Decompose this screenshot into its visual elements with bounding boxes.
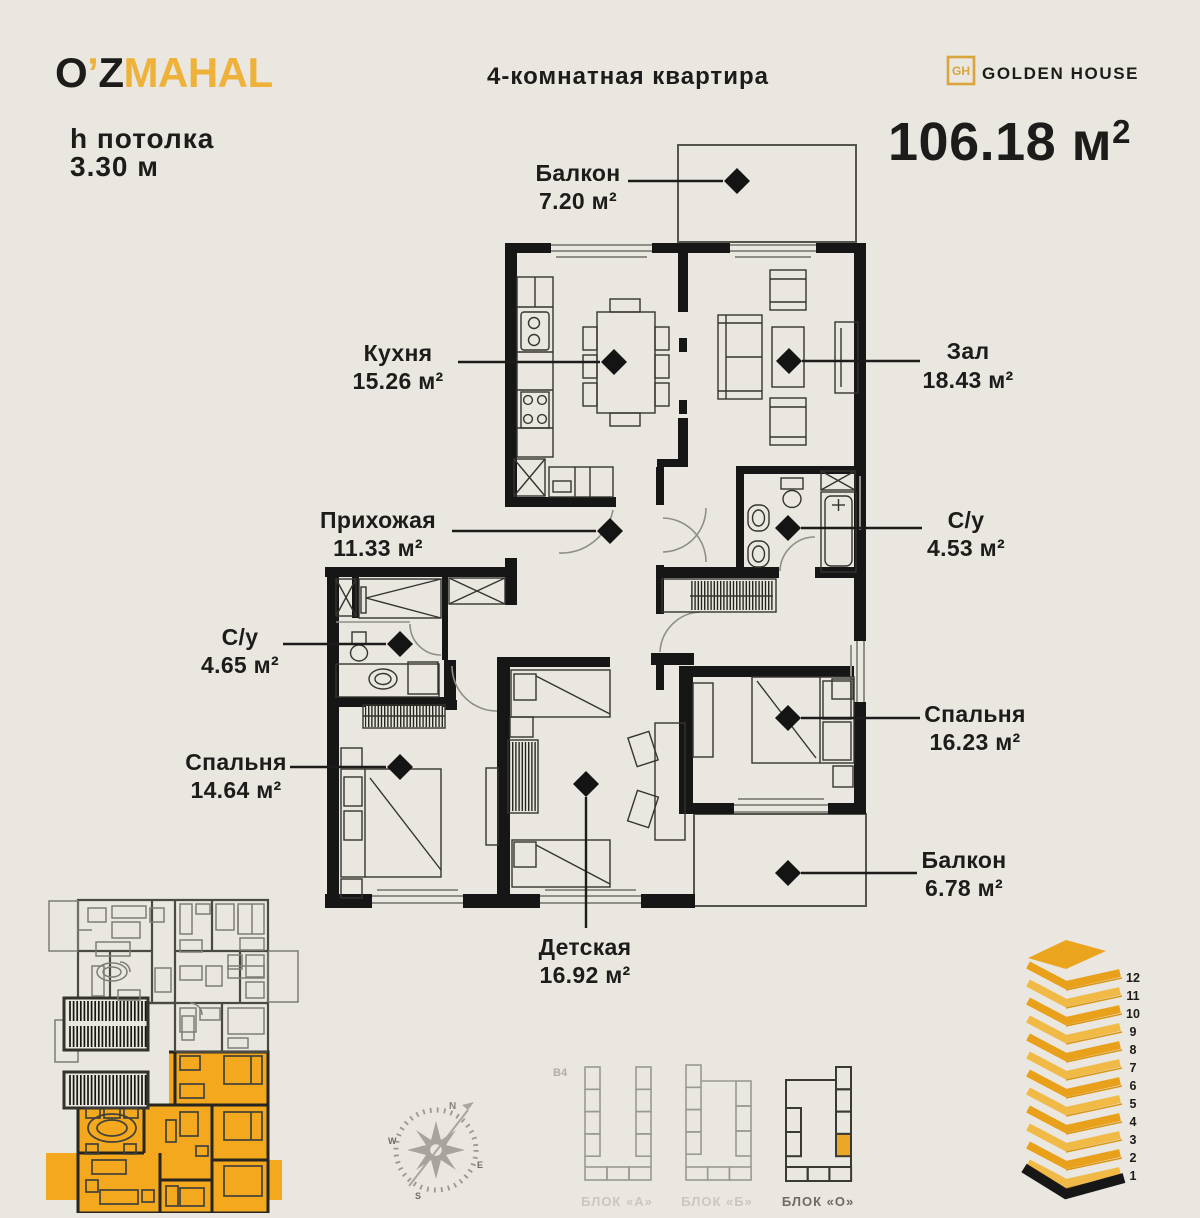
- svg-text:14.64 м²: 14.64 м²: [190, 777, 281, 803]
- svg-text:Детская: Детская: [539, 934, 632, 960]
- svg-text:С/у: С/у: [948, 507, 985, 533]
- svg-text:6.78 м²: 6.78 м²: [925, 875, 1003, 901]
- svg-text:Кухня: Кухня: [364, 340, 433, 366]
- svg-text:11: 11: [1126, 989, 1139, 1003]
- svg-text:4.53 м²: 4.53 м²: [927, 535, 1005, 561]
- svg-text:Балкон: Балкон: [536, 160, 621, 186]
- svg-text:18.43 м²: 18.43 м²: [922, 367, 1013, 393]
- svg-text:Спальня: Спальня: [185, 749, 286, 775]
- svg-text:O’ZMAHAL: O’ZMAHAL: [55, 49, 273, 96]
- svg-text:4: 4: [1130, 1115, 1137, 1129]
- svg-text:4.65 м²: 4.65 м²: [201, 652, 279, 678]
- svg-text:Прихожая: Прихожая: [320, 507, 436, 533]
- svg-text:7: 7: [1130, 1061, 1137, 1075]
- svg-text:8: 8: [1130, 1043, 1137, 1057]
- svg-text:12: 12: [1126, 971, 1140, 985]
- svg-text:11.33 м²: 11.33 м²: [333, 535, 423, 561]
- svg-text:N: N: [449, 1101, 456, 1112]
- svg-text:E: E: [477, 1160, 483, 1170]
- svg-text:1: 1: [1130, 1169, 1137, 1183]
- svg-text:GH: GH: [952, 64, 970, 78]
- svg-text:6: 6: [1130, 1079, 1137, 1093]
- svg-text:W: W: [388, 1136, 397, 1146]
- svg-text:2: 2: [1130, 1151, 1137, 1165]
- svg-text:БЛОК «А»: БЛОК «А»: [581, 1194, 653, 1209]
- svg-text:10: 10: [1126, 1007, 1140, 1021]
- svg-text:Зал: Зал: [947, 338, 990, 364]
- svg-text:4-комнатная квартира: 4-комнатная квартира: [487, 63, 769, 90]
- svg-text:7.20 м²: 7.20 м²: [539, 188, 617, 214]
- svg-text:Спальня: Спальня: [924, 701, 1025, 727]
- svg-text:9: 9: [1130, 1025, 1137, 1039]
- svg-text:БЛОК «О»: БЛОК «О»: [782, 1194, 854, 1209]
- svg-text:S: S: [415, 1191, 421, 1201]
- svg-text:3: 3: [1130, 1133, 1137, 1147]
- svg-text:106.18 м2: 106.18 м2: [888, 112, 1131, 172]
- svg-text:5: 5: [1130, 1097, 1137, 1111]
- svg-text:16.92 м²: 16.92 м²: [539, 962, 630, 988]
- svg-text:БЛОК «Б»: БЛОК «Б»: [681, 1194, 753, 1209]
- svg-text:h потолка: h потолка: [70, 123, 214, 154]
- svg-text:С/у: С/у: [222, 624, 259, 650]
- svg-text:16.23 м²: 16.23 м²: [929, 729, 1020, 755]
- svg-text:GOLDEN HOUSE: GOLDEN HOUSE: [982, 64, 1139, 83]
- svg-text:15.26 м²: 15.26 м²: [352, 368, 443, 394]
- svg-text:3.30 м: 3.30 м: [70, 151, 159, 182]
- svg-text:Балкон: Балкон: [922, 847, 1007, 873]
- svg-text:B4: B4: [553, 1067, 568, 1079]
